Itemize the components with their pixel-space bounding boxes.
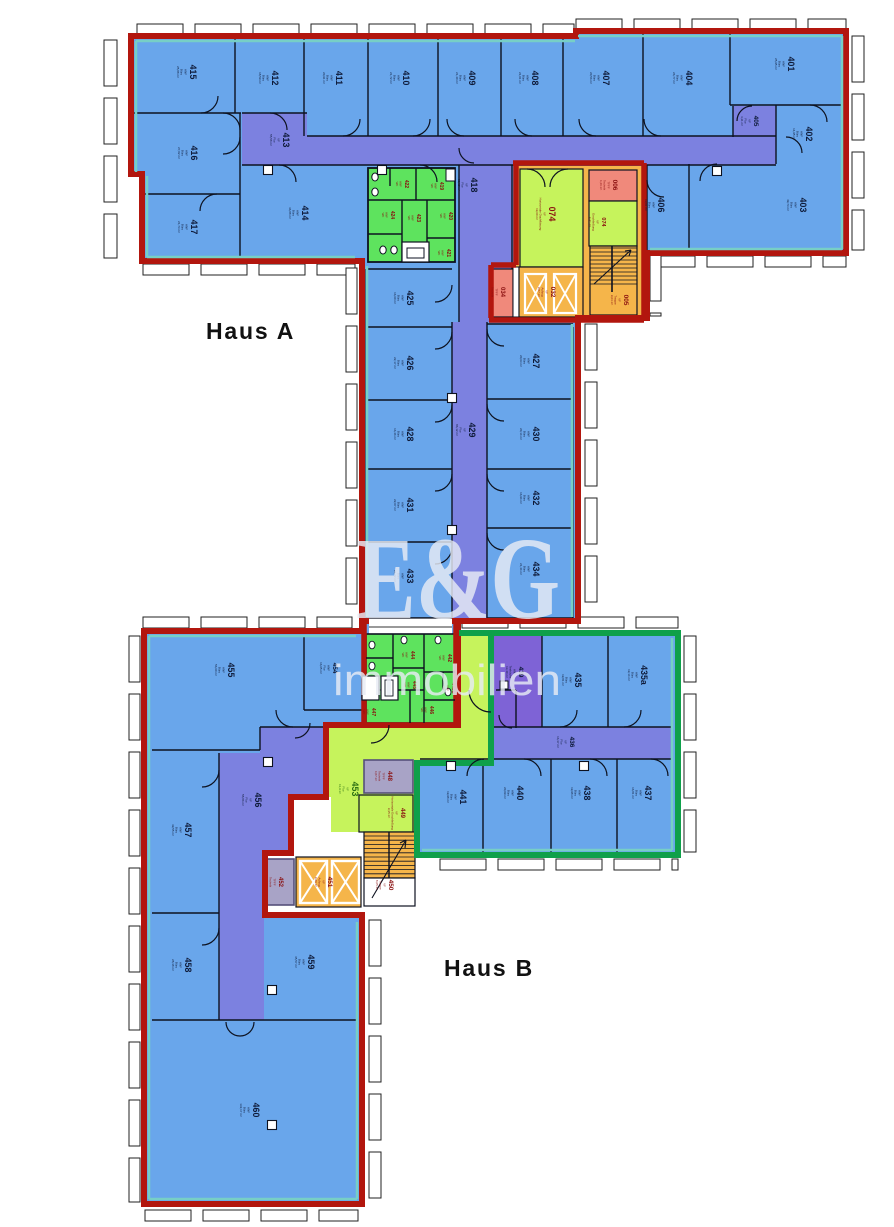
svg-text:459: 459	[306, 955, 316, 970]
svg-text:460: 460	[251, 1103, 261, 1118]
svg-text:032: 032	[549, 287, 556, 298]
svg-text:132,17 m²: 132,17 m²	[239, 1103, 243, 1117]
svg-text:8,65 m²: 8,65 m²	[375, 880, 379, 890]
svg-text:21,72 m²: 21,72 m²	[389, 72, 393, 84]
svg-text:immobilien: immobilien	[333, 656, 561, 705]
svg-text:49,73 m²: 49,73 m²	[786, 199, 790, 211]
svg-text:415: 415	[188, 65, 198, 80]
svg-text:446: 446	[428, 706, 434, 715]
svg-text:20,91 m²: 20,91 m²	[322, 72, 326, 84]
svg-text:22,07 m²: 22,07 m²	[393, 499, 397, 511]
svg-text:424: 424	[389, 211, 395, 220]
svg-text:455: 455	[226, 663, 236, 678]
svg-text:16,60 m²: 16,60 m²	[393, 292, 397, 304]
svg-text:55,58 m²: 55,58 m²	[269, 134, 273, 146]
svg-text:429: 429	[467, 423, 477, 438]
svg-text:Haus B: Haus B	[444, 955, 534, 981]
svg-text:36,88 m²: 36,88 m²	[288, 207, 292, 219]
svg-text:426: 426	[405, 356, 415, 371]
svg-text:402: 402	[804, 127, 814, 142]
svg-text:WC: WC	[420, 708, 424, 713]
svg-text:58,86 m²: 58,86 m²	[241, 794, 245, 806]
svg-text:405: 405	[752, 116, 759, 127]
svg-text:WC: WC	[439, 214, 443, 219]
svg-text:21,73 m²: 21,73 m²	[177, 221, 181, 233]
svg-text:422: 422	[403, 180, 409, 189]
svg-text:449: 449	[399, 808, 405, 819]
svg-text:26,77 m²: 26,77 m²	[672, 72, 676, 84]
svg-text:448: 448	[386, 771, 392, 782]
svg-text:25,95 m²: 25,95 m²	[774, 58, 778, 70]
svg-text:13,01 m²: 13,01 m²	[644, 199, 648, 211]
svg-text:411: 411	[334, 71, 344, 85]
svg-text:Technik: Technik	[269, 877, 273, 888]
svg-text:418: 418	[469, 178, 479, 193]
svg-text:20,14 m²: 20,14 m²	[519, 428, 523, 440]
svg-text:25,88 m²: 25,88 m²	[176, 66, 180, 78]
svg-text:440: 440	[515, 786, 525, 801]
svg-text:456: 456	[253, 793, 263, 808]
svg-text:14,95 m²: 14,95 m²	[792, 128, 796, 140]
svg-text:WC: WC	[362, 710, 366, 715]
svg-text:16,46 m²: 16,46 m²	[393, 428, 397, 440]
svg-text:457: 457	[183, 823, 193, 838]
svg-text:423: 423	[415, 214, 421, 223]
svg-text:407: 407	[601, 71, 611, 86]
svg-text:20,63 m²: 20,63 m²	[519, 355, 523, 367]
svg-text:452: 452	[277, 877, 283, 888]
svg-text:006: 006	[611, 180, 618, 191]
svg-text:451: 451	[326, 877, 333, 888]
svg-text:WC: WC	[407, 216, 411, 221]
svg-text:39,55 m²: 39,55 m²	[171, 824, 175, 836]
svg-text:56,60 m²: 56,60 m²	[214, 664, 218, 676]
svg-text:450: 450	[387, 880, 394, 891]
svg-text:4,46 m²: 4,46 m²	[599, 180, 603, 190]
svg-text:441: 441	[458, 790, 468, 805]
svg-text:18,59 m²: 18,59 m²	[258, 72, 262, 84]
svg-text:406: 406	[656, 198, 666, 213]
svg-text:19,98 m²: 19,98 m²	[446, 791, 450, 803]
svg-text:16,37 m²: 16,37 m²	[556, 736, 560, 748]
svg-text:420: 420	[447, 212, 453, 221]
svg-text:16,81 m²: 16,81 m²	[631, 787, 635, 799]
svg-text:Haus A: Haus A	[206, 318, 295, 344]
svg-text:453: 453	[350, 782, 360, 797]
svg-text:403: 403	[798, 198, 808, 213]
svg-text:401: 401	[786, 57, 796, 72]
svg-text:22,17 m²: 22,17 m²	[393, 357, 397, 369]
svg-text:E&G: E&G	[356, 513, 560, 644]
svg-text:412: 412	[270, 71, 280, 86]
svg-text:438: 438	[582, 786, 592, 801]
svg-text:417: 417	[189, 220, 199, 235]
svg-text:16,65 m²: 16,65 m²	[319, 662, 323, 674]
svg-text:421: 421	[445, 249, 451, 258]
svg-text:410: 410	[401, 71, 411, 86]
svg-text:432: 432	[531, 491, 541, 506]
svg-text:WC: WC	[437, 251, 441, 256]
svg-text:Technik: Technik	[491, 287, 495, 298]
svg-text:9,35 m²: 9,35 m²	[387, 808, 391, 818]
svg-text:4,87 m²: 4,87 m²	[374, 771, 378, 781]
svg-text:19,14 m²: 19,14 m²	[627, 669, 631, 681]
svg-text:4,11 m²: 4,11 m²	[740, 116, 744, 126]
svg-text:21,01 m²: 21,01 m²	[518, 72, 522, 84]
svg-text:034: 034	[499, 287, 505, 298]
svg-text:20,56 m²: 20,56 m²	[589, 72, 593, 84]
svg-text:430: 430	[531, 427, 541, 442]
svg-text:WC: WC	[430, 184, 434, 189]
svg-text:408: 408	[530, 71, 540, 86]
svg-text:413: 413	[281, 133, 291, 148]
svg-text:27,02 m²: 27,02 m²	[177, 147, 181, 159]
svg-text:435a: 435a	[639, 665, 649, 685]
svg-text:074: 074	[600, 217, 606, 227]
svg-text:074: 074	[547, 207, 557, 222]
svg-text:86,12 m²: 86,12 m²	[455, 424, 459, 436]
svg-text:458: 458	[183, 958, 193, 973]
svg-text:28,38 m²: 28,38 m²	[171, 959, 175, 971]
svg-text:51,12 m²: 51,12 m²	[457, 179, 461, 191]
svg-text:427: 427	[531, 354, 541, 369]
svg-text:437: 437	[643, 786, 653, 801]
svg-text:414: 414	[300, 206, 310, 221]
svg-text:41,9 m²: 41,9 m²	[338, 784, 342, 794]
svg-text:416: 416	[189, 146, 199, 161]
svg-text:431: 431	[405, 498, 415, 513]
svg-text:21,40 m²: 21,40 m²	[455, 72, 459, 84]
svg-text:35,57 m²: 35,57 m²	[294, 956, 298, 968]
svg-text:428: 428	[405, 427, 415, 442]
svg-text:419: 419	[438, 182, 444, 191]
svg-text:19,60 m²: 19,60 m²	[535, 208, 539, 220]
svg-text:WC: WC	[395, 182, 399, 187]
svg-text:9,63 m²: 9,63 m²	[610, 295, 614, 305]
svg-text:447: 447	[370, 708, 376, 717]
svg-text:9,87 m²: 9,87 m²	[537, 287, 541, 297]
svg-text:409: 409	[467, 71, 477, 86]
svg-text:19,98 m²: 19,98 m²	[570, 787, 574, 799]
svg-text:9,26 m²: 9,26 m²	[314, 877, 318, 887]
svg-text:20,09 m²: 20,09 m²	[503, 787, 507, 799]
svg-text:16,94 m²: 16,94 m²	[519, 492, 523, 504]
svg-text:WC: WC	[381, 213, 385, 218]
svg-text:19,81 m²: 19,81 m²	[561, 674, 565, 686]
svg-text:425: 425	[405, 291, 415, 306]
svg-text:4,41 m²: 4,41 m²	[588, 217, 592, 227]
svg-text:404: 404	[684, 71, 694, 86]
svg-text:435: 435	[573, 673, 583, 688]
svg-text:005: 005	[622, 295, 629, 306]
svg-text:436: 436	[568, 737, 575, 748]
